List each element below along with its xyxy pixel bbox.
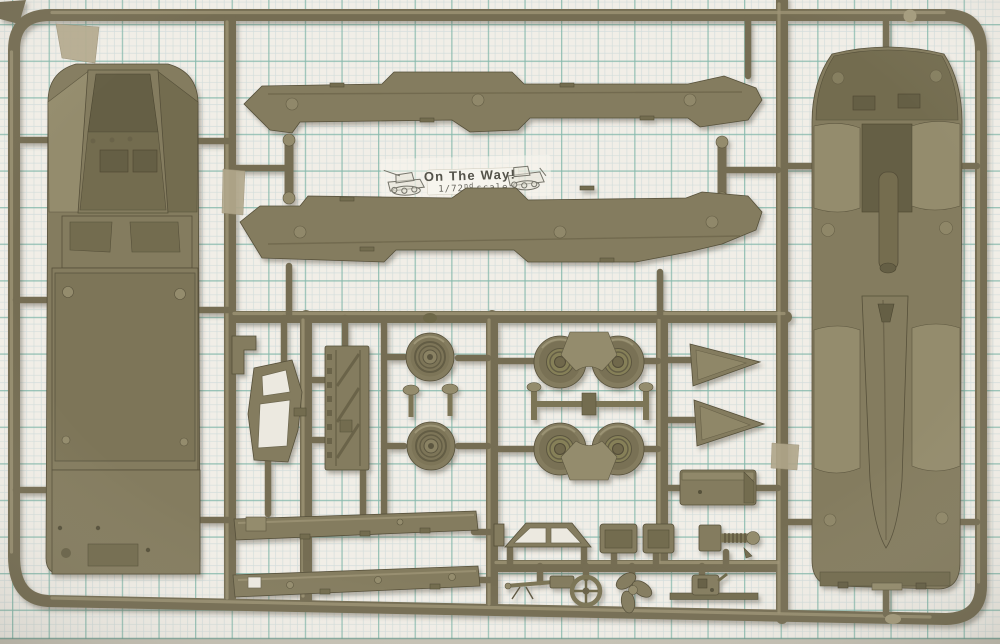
sprue-photo: On The Way! 1/72ndscale [0,0,1000,644]
photo-vignette [0,0,1000,644]
photo-canvas: On The Way! 1/72ndscale [0,0,1000,644]
